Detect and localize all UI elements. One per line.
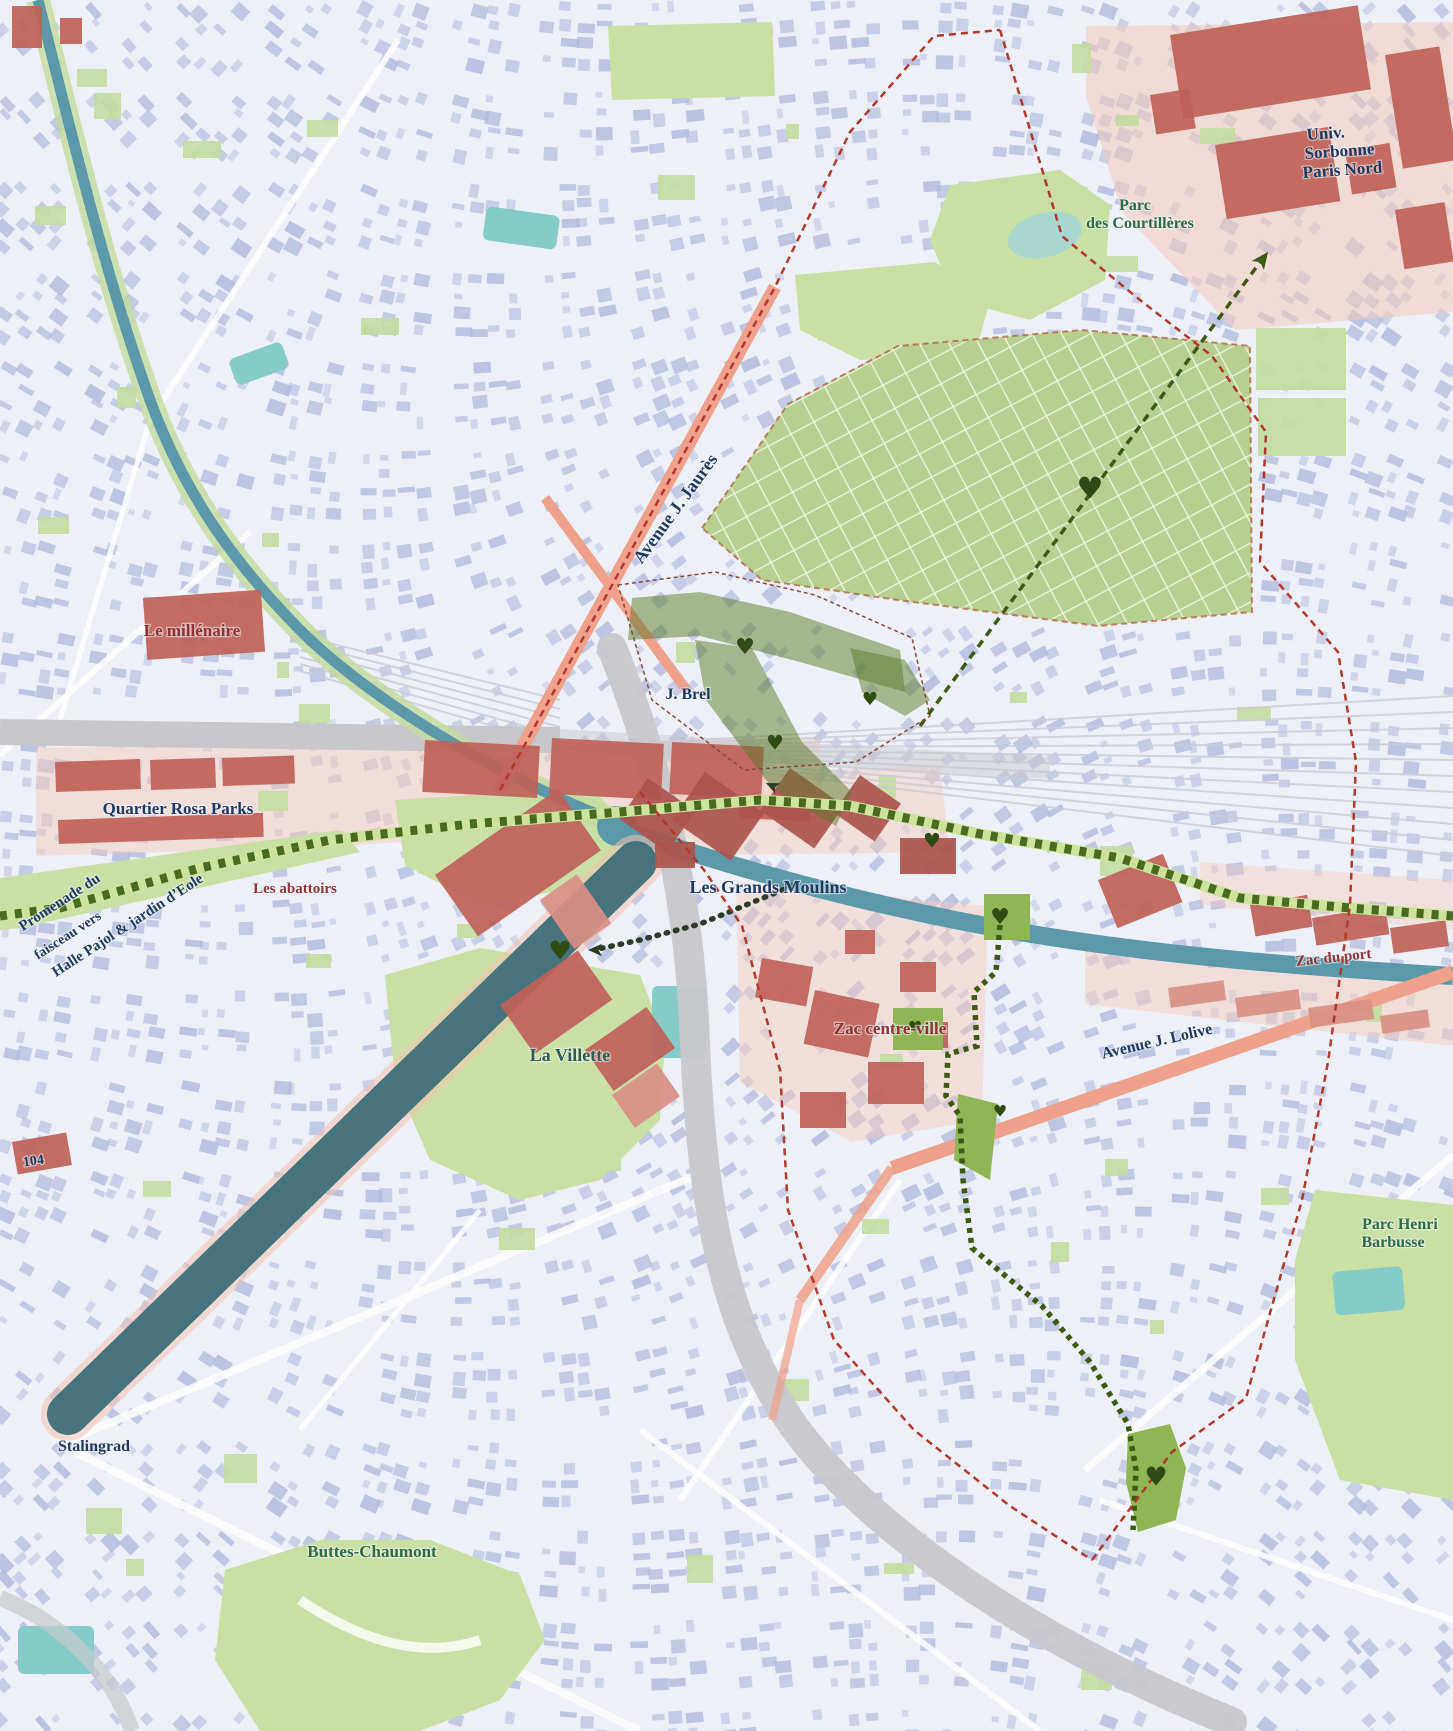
heart-marker-icon: ♥ [993, 1102, 1007, 1121]
map-label-centquatre: 104 [22, 1153, 45, 1171]
map-label-grands-moulins: Les Grands Moulins [689, 877, 846, 897]
heart-marker-icon: ♥ [766, 731, 784, 755]
map-label-stalingrad: Stalingrad [58, 1438, 130, 1455]
map-label-buttes-chaumont: Buttes-Chaumont [307, 1542, 437, 1561]
map-label-rosa-parks: Quartier Rosa Parks [103, 799, 254, 818]
map-label-la-villette: La Villette [530, 1045, 610, 1065]
heart-marker-icon: ♥ [548, 937, 571, 967]
map-label-courtilleres-2: des Courtillères [1086, 215, 1194, 232]
heart-marker-icon: ♥ [923, 829, 941, 853]
heart-marker-icon: ♥ [990, 905, 1010, 930]
map-label-barbusse-1: Parc Henri [1362, 1216, 1438, 1233]
peripherique-horizontal [0, 732, 560, 740]
map-label-barbusse-2: Barbusse [1361, 1234, 1424, 1251]
map-label-courtilleres-1: Parc [1119, 197, 1151, 214]
map-label-millenaire: Le millénaire [144, 621, 241, 640]
map-canvas: ♥♥♥♥♥♥♥♥♥♥Univ.SorbonneParis NordParcdes… [0, 0, 1453, 1731]
heart-marker-icon: ♥ [1144, 1463, 1167, 1493]
heart-marker-icon: ♥ [735, 635, 755, 660]
map-label-zac-centre: Zac centre-ville [834, 1019, 947, 1038]
heart-marker-icon: ♥ [862, 689, 878, 710]
map-label-j-brel: J. Brel [665, 686, 711, 703]
heart-marker-icon: ♥ [1077, 472, 1104, 507]
urban-plan-map: ♥♥♥♥♥♥♥♥♥♥Univ.SorbonneParis NordParcdes… [0, 0, 1453, 1731]
map-label-abattoirs: Les abattoirs [253, 881, 337, 897]
